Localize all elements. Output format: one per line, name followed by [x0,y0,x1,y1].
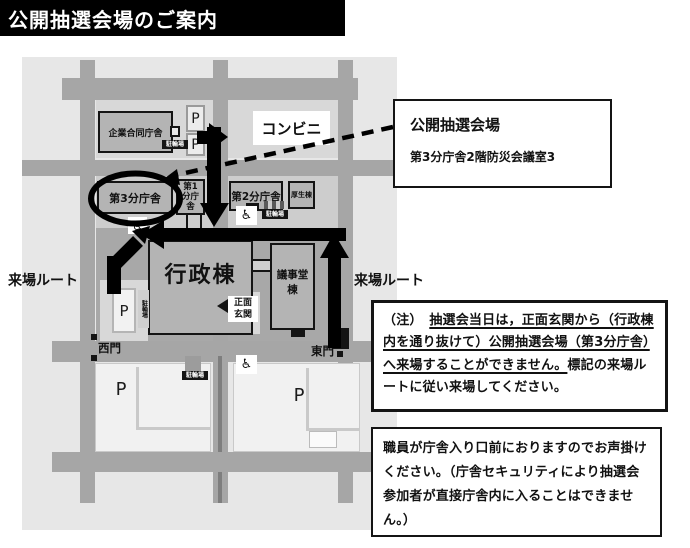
parking-box-west: P [112,288,136,333]
parking-box-north-2: P [186,133,205,156]
road-vertical-east-upper [338,60,353,365]
bicycle-parking-square-south [185,356,201,371]
bicycle-parking-strip-label: 駐輪場 [141,300,147,318]
parking-line-sw-v [136,367,139,429]
corridor-annex1-admin [186,213,202,242]
main-entrance-box: 正面 玄関 [228,296,258,322]
parking-label: P [119,302,128,320]
callout-subtitle: 第3分庁舎2階防災会議室3 [410,148,595,165]
bicycle-parking-strip: 駐輪場 [138,290,149,328]
parking-label: P [191,137,199,153]
building-admin-label: 行政棟 [164,257,236,289]
east-gate-building [332,328,349,349]
west-gate-label: 西門 [98,340,121,356]
west-gate-marker-2 [91,355,97,361]
guide-page: 企業合同庁舎 P P 駐輪場 コンビニ 第3分庁舎 第1 分庁舎 第2分庁舎 厚… [0,0,690,548]
bicycle-parking-chip-east: 駐輪場 [262,210,288,219]
building-annex-3: 第3分庁舎 [97,181,173,214]
road-vertical-west [80,60,95,503]
bike-racks [264,201,287,209]
corridor-admin-assembly [251,259,272,272]
callout-title: 公開抽選会場 [410,114,595,135]
parking-label-southwest: P [108,376,134,402]
building-annex-1-label-2: 分庁舎 [178,192,203,212]
building-corporate-tab [170,126,180,137]
staff-note-box: 職員が庁舎入り口前におりますのでお声掛けください。（庁舎セキュリティにより抽選会… [371,427,662,537]
building-assembly-hall: 議事堂棟 [270,243,315,330]
main-entrance-triangle-icon [217,299,228,313]
wheelchair-icon-annex2: ♿ [236,206,257,225]
parking-label-southeast: P [286,382,312,408]
building-assembly-hall-label: 議事堂棟 [272,267,313,297]
parking-line-sw-h [136,427,210,430]
west-gate-marker-1 [91,334,97,340]
building-annex-1-label-1: 第1 [183,182,197,192]
bicycle-parking-chip-south: 駐輪場 [182,371,208,380]
main-entrance-label-1: 正面 [234,297,252,309]
building-corporate-joint-label: 企業合同庁舎 [108,126,162,139]
route-label-left: 来場ルート [8,270,78,290]
convenience-store: コンビニ [253,111,330,145]
parking-box-north-1: P [186,105,205,132]
note-box: （注） 抽選会当日は，正面玄関から（行政棟内を通り抜けて）公開抽選会場（第3分庁… [371,300,668,412]
building-welfare: 厚生棟 [288,181,315,209]
road-top [62,78,358,100]
convenience-store-label: コンビニ [261,118,321,139]
title-bar: 公開抽選会場のご案内 [0,0,345,36]
assembly-hall-entrance-mark [291,328,305,337]
page-title: 公開抽選会場のご案内 [0,4,218,33]
note-prefix: （注） [383,313,429,328]
building-annex-3-label: 第3分庁舎 [109,190,161,206]
parking-kiosk [309,431,337,448]
parking-label: P [191,111,199,127]
east-gate-label: 東門 [311,343,334,359]
bicycle-parking-chip-north: 駐輪場 [162,140,188,149]
route-label-right: 来場ルート [354,270,424,290]
road-median-2 [218,472,222,503]
road-median-1 [218,356,222,452]
wheelchair-icon-annex3: ♿ [128,217,147,234]
main-entrance-label-2: 玄関 [234,309,252,321]
staff-note-text: 職員が庁舎入り口前におりますのでお声掛けください。（庁舎セキュリティにより抽選会… [383,441,647,528]
building-welfare-label: 厚生棟 [291,190,312,200]
east-gate-marker [337,351,343,357]
building-annex-1: 第1 分庁舎 [176,179,205,215]
callout-box: 公開抽選会場 第3分庁舎2階防災会議室3 [393,99,612,188]
wheelchair-icon-south: ♿ [236,355,257,374]
